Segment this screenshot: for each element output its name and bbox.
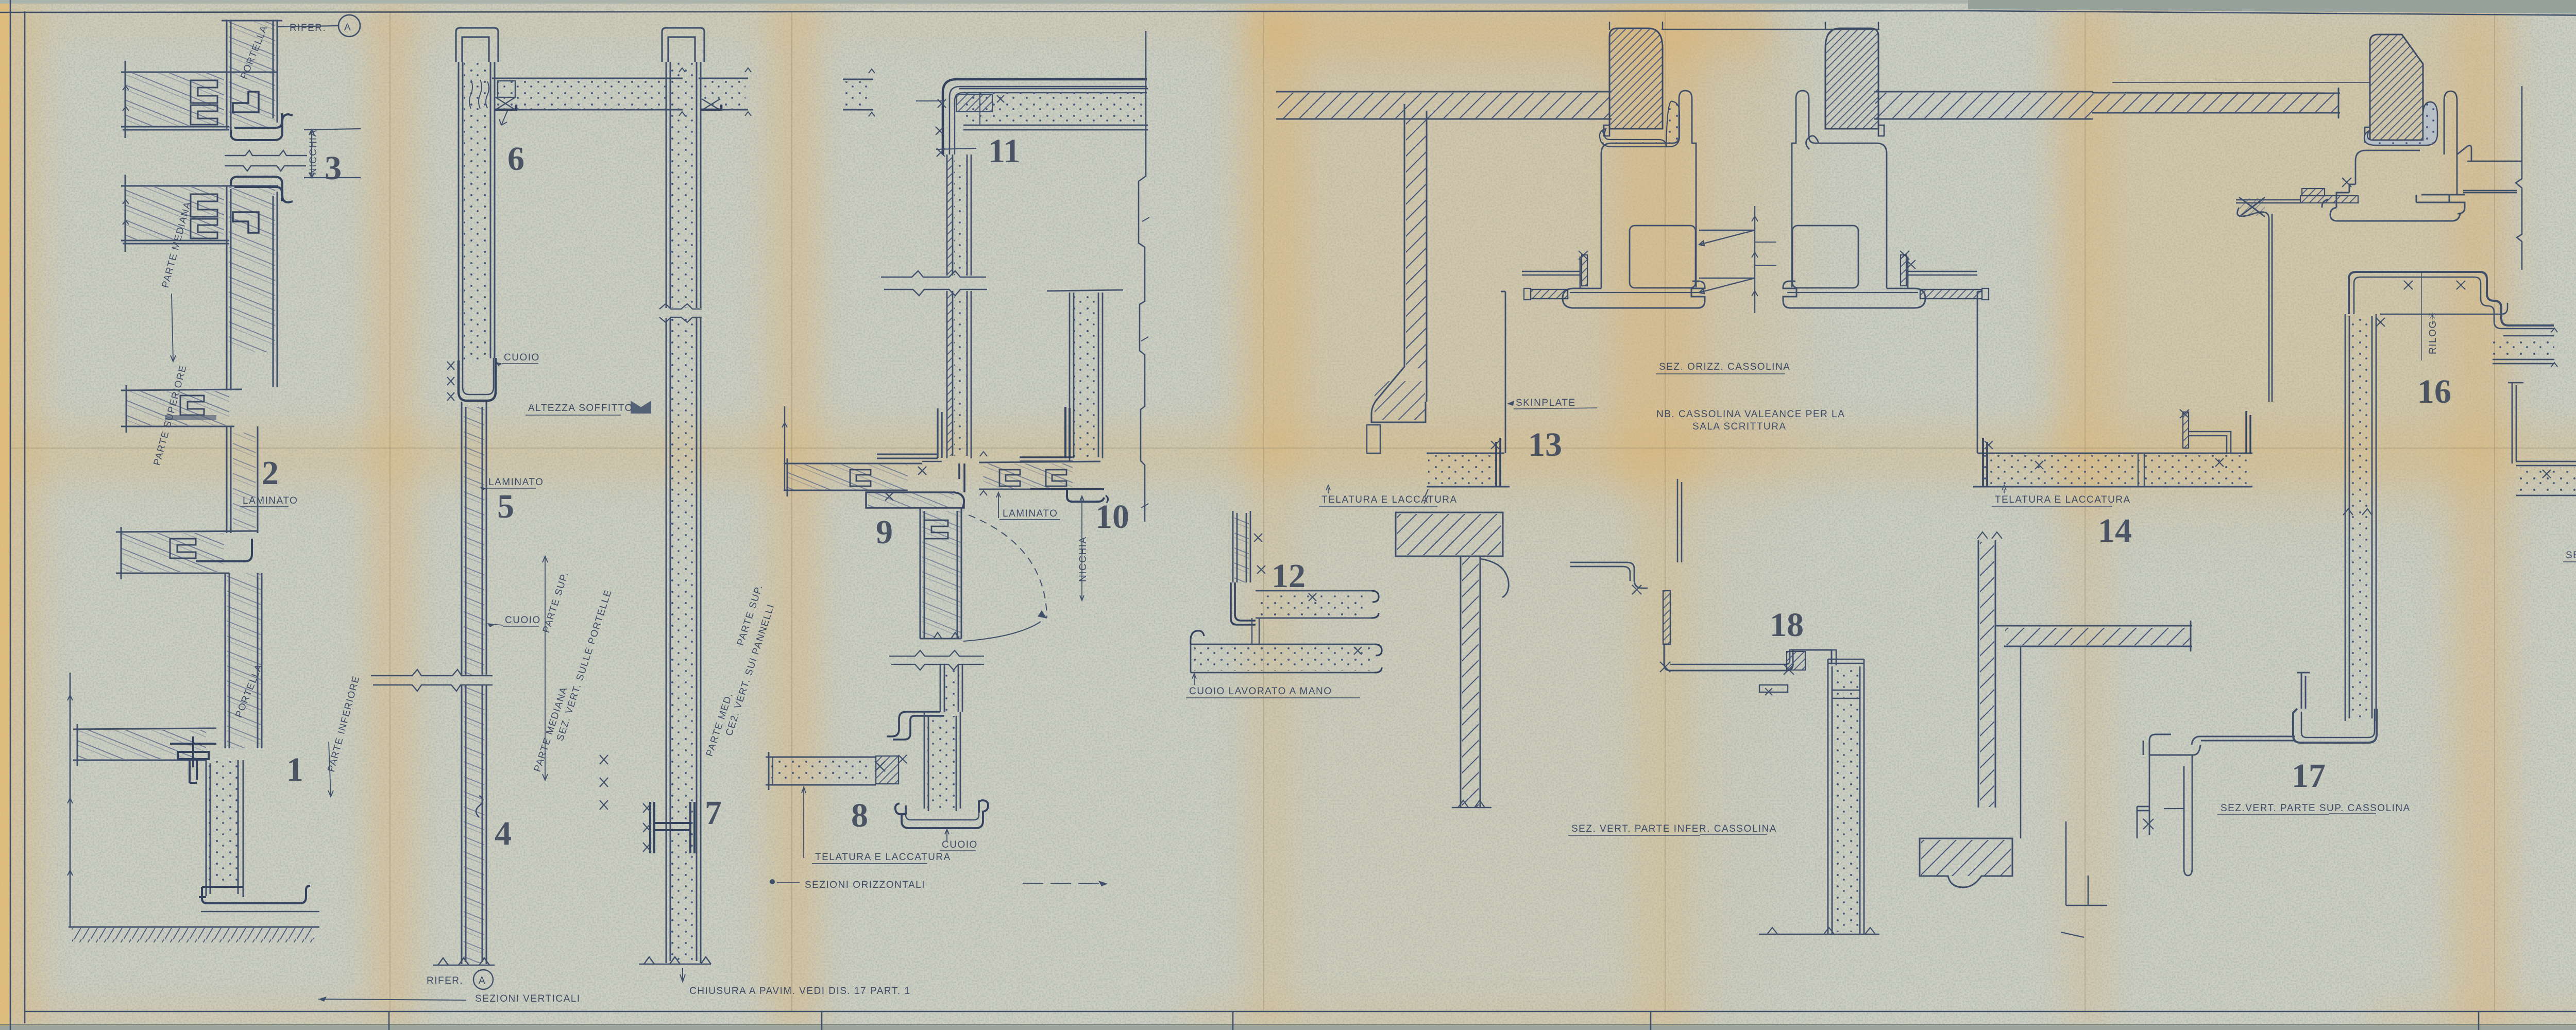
svg-text:SEZIONI VERTICALI: SEZIONI VERTICALI	[475, 993, 581, 1004]
svg-text:TELATURA E LACCATURA: TELATURA E LACCATURA	[815, 852, 951, 863]
svg-text:11: 11	[988, 132, 1020, 170]
svg-text:17: 17	[2292, 757, 2326, 795]
svg-text:SEZ.VERT. PARTE SUP. CASSOLINA: SEZ.VERT. PARTE SUP. CASSOLINA	[2221, 803, 2411, 814]
svg-text:LAMINATO: LAMINATO	[1003, 508, 1058, 519]
svg-text:CUOIO: CUOIO	[505, 615, 541, 626]
svg-text:SKINPLATE: SKINPLATE	[1516, 398, 1576, 408]
svg-text:8: 8	[851, 797, 868, 834]
svg-text:CUOIO: CUOIO	[504, 352, 540, 363]
svg-text:SALA SCRITTURA: SALA SCRITTURA	[1692, 421, 1787, 432]
svg-text:RIFER.: RIFER.	[427, 975, 463, 986]
svg-text:18: 18	[1770, 606, 1804, 644]
svg-text:NB. CASSOLINA VALEANCE PER LA: NB. CASSOLINA VALEANCE PER LA	[1656, 409, 1845, 420]
svg-text:NICCHIA: NICCHIA	[308, 129, 319, 175]
svg-text:2: 2	[262, 454, 279, 492]
svg-text:SEZ.ORIZZ. AL PANNELLO INCISO: SEZ.ORIZZ. AL PANNELLO INCISO	[2566, 550, 2576, 561]
svg-text:1: 1	[286, 751, 303, 788]
svg-text:6: 6	[507, 140, 524, 178]
svg-text:SEZ. ORIZZ. CASSOLINA: SEZ. ORIZZ. CASSOLINA	[1659, 362, 1790, 372]
svg-text:SEZIONI ORIZZONTALI: SEZIONI ORIZZONTALI	[805, 880, 925, 890]
svg-text:16: 16	[2417, 373, 2451, 410]
svg-text:12: 12	[1272, 557, 1306, 595]
svg-text:7: 7	[705, 794, 722, 832]
svg-text:9: 9	[876, 513, 893, 551]
svg-text:5: 5	[497, 488, 514, 525]
svg-text:CHIUSURA A PAVIM. VEDI DIS. 17: CHIUSURA A PAVIM. VEDI DIS. 17 PART. 1	[689, 986, 910, 997]
svg-text:13: 13	[1528, 426, 1562, 463]
svg-text:4: 4	[495, 815, 512, 852]
svg-text:14: 14	[2098, 512, 2132, 550]
svg-text:ALTEZZA SOFFITTO: ALTEZZA SOFFITTO	[528, 403, 633, 414]
svg-text:3: 3	[325, 149, 342, 187]
svg-text:CUOIO LAVORATO A MANO: CUOIO LAVORATO A MANO	[1189, 686, 1332, 697]
svg-text:A: A	[344, 22, 351, 33]
svg-text:TELATURA E LACCATURA: TELATURA E LACCATURA	[1321, 494, 1458, 505]
svg-text:RIFER.: RIFER.	[290, 23, 326, 33]
svg-text:SEZ. VERT. PARTE INFER. CASSOL: SEZ. VERT. PARTE INFER. CASSOLINA	[1571, 823, 1777, 834]
svg-text:LAMINATO: LAMINATO	[488, 477, 544, 488]
svg-text:NICCHIA: NICCHIA	[1078, 536, 1089, 582]
svg-text:A: A	[479, 975, 486, 986]
svg-text:TELATURA E LACCATURA: TELATURA E LACCATURA	[1995, 494, 2131, 505]
svg-text:RILOG✳: RILOG✳	[2428, 311, 2438, 354]
svg-text:10: 10	[1095, 498, 1129, 536]
